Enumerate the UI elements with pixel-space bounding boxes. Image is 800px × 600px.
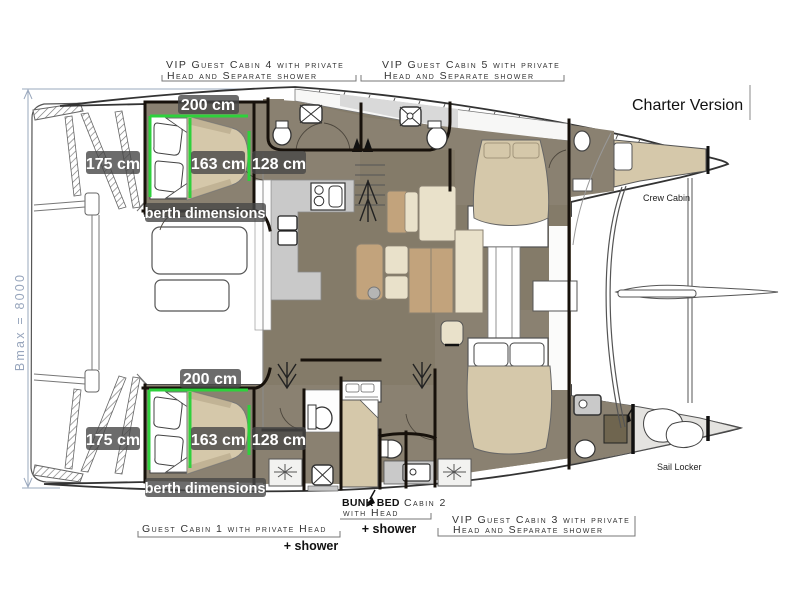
svg-text:128 cm: 128 cm: [252, 432, 306, 449]
svg-text:Sail Locker: Sail Locker: [657, 462, 702, 472]
svg-text:Bmax = 8000: Bmax = 8000: [13, 273, 27, 371]
svg-text:Head and Separate shower: Head and Separate shower: [167, 70, 317, 82]
svg-text:with Head: with Head: [343, 507, 399, 519]
svg-text:175 cm: 175 cm: [86, 432, 140, 449]
svg-text:128 cm: 128 cm: [252, 156, 306, 173]
svg-text:175 cm: 175 cm: [86, 156, 140, 173]
svg-text:+ shower: + shower: [284, 539, 339, 553]
svg-text:Guest Cabin 1 with private Hea: Guest Cabin 1 with private Head: [142, 523, 327, 535]
svg-text:200 cm: 200 cm: [183, 371, 237, 388]
svg-text:Crew Cabin: Crew Cabin: [643, 193, 690, 203]
svg-text:Head and Separate shower: Head and Separate shower: [384, 70, 534, 82]
svg-text:Head and Separate shower: Head and Separate shower: [453, 524, 603, 536]
svg-text:Charter Version: Charter Version: [632, 97, 743, 114]
svg-text:+ shower: + shower: [362, 522, 417, 536]
svg-text:163 cm: 163 cm: [191, 432, 245, 449]
svg-text:berth dimensions: berth dimensions: [145, 481, 266, 497]
svg-text:Cabin 2: Cabin 2: [404, 497, 447, 509]
svg-text:163 cm: 163 cm: [191, 156, 245, 173]
svg-text:berth dimensions: berth dimensions: [145, 206, 266, 222]
svg-text:200 cm: 200 cm: [181, 97, 235, 114]
